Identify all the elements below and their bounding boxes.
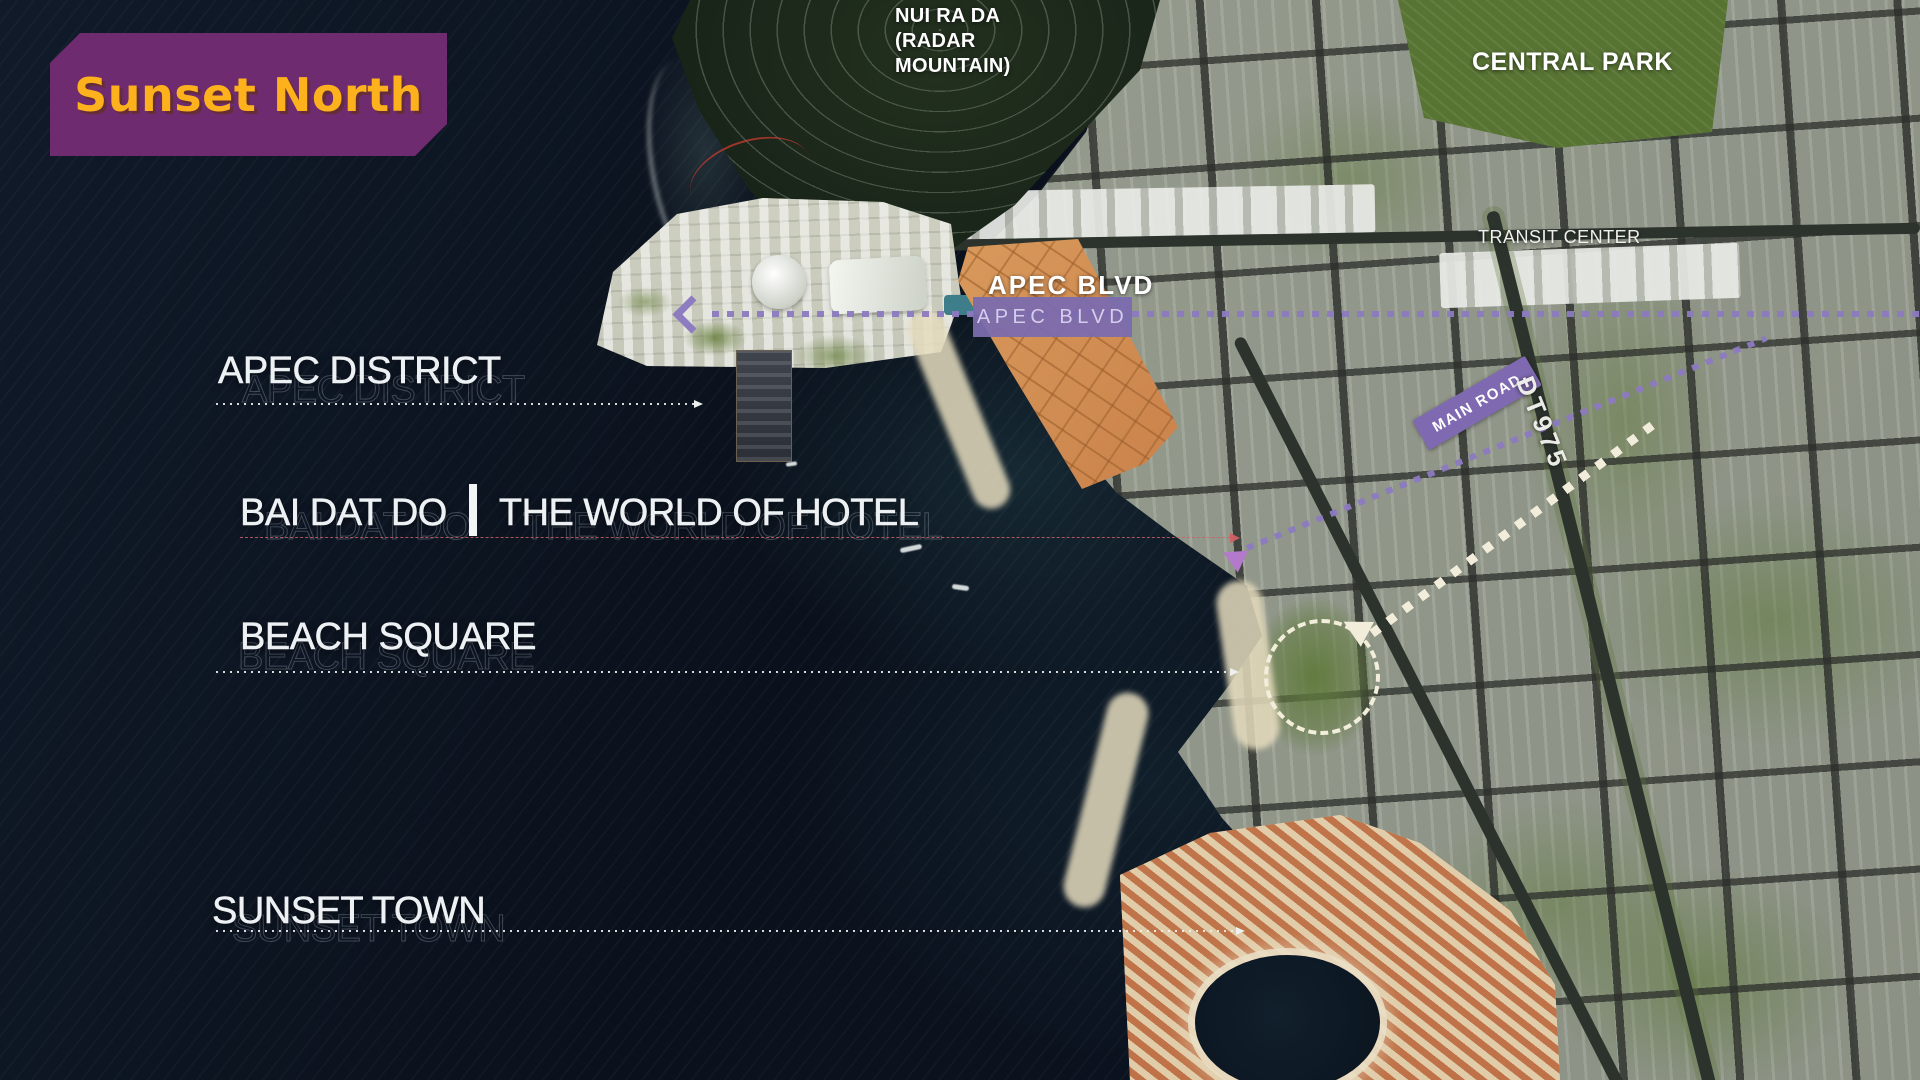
transit-center-label: TRANSIT CENTER [1478, 227, 1641, 248]
stadium-dome [752, 255, 806, 309]
bai-dat-do-leader [240, 537, 1230, 538]
building-row [1439, 243, 1741, 308]
apec-blvd-badge: APEC BLVD [973, 297, 1132, 337]
map-canvas: Sunset North NUI RA DA (RADAR MOUNTAIN) … [0, 0, 1920, 1080]
project-title-badge: Sunset North [50, 33, 447, 156]
bai-dat-do-label: BAI DAT DO [240, 492, 447, 535]
project-title: Sunset North [74, 68, 423, 122]
apec-district-callout: APEC DISTRICT [218, 350, 501, 393]
divider-bar [469, 484, 477, 536]
mountain-label: NUI RA DA (RADAR MOUNTAIN) [895, 4, 1011, 79]
pier [736, 350, 792, 462]
leader-arrow-icon [1230, 668, 1239, 676]
world-of-hotel-label: THE WORLD OF HOTEL [499, 492, 919, 535]
convention-hall [829, 256, 928, 315]
beach-square-leader [216, 671, 1230, 673]
sunset-town-leader [216, 930, 1236, 932]
leader-arrow-red-icon [1230, 533, 1240, 543]
sunset-town-callout: SUNSET TOWN [212, 890, 485, 933]
apec-blvd-route-line [712, 311, 1920, 317]
apec-blvd-label: APEC BLVD [977, 306, 1128, 329]
central-park-label: CENTRAL PARK [1472, 48, 1673, 77]
beach-square-callout: BEACH SQUARE [240, 616, 536, 659]
lagoon [1195, 955, 1380, 1080]
apec-district-leader [216, 403, 694, 405]
leader-arrow-icon [1236, 927, 1245, 935]
leader-arrow-icon [694, 400, 703, 408]
bai-dat-do-callout: BAI DAT DO THE WORLD OF HOTEL [240, 490, 918, 536]
